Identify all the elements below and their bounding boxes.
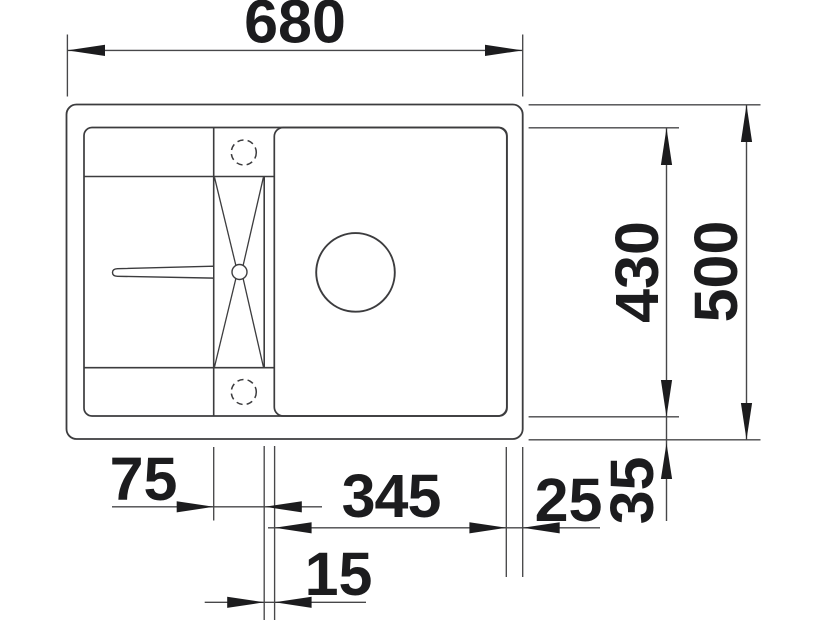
svg-text:35: 35 [598, 457, 666, 525]
svg-text:25: 25 [535, 466, 603, 534]
svg-text:500: 500 [682, 221, 750, 323]
svg-text:680: 680 [244, 0, 346, 56]
svg-text:15: 15 [305, 540, 373, 608]
svg-text:345: 345 [342, 462, 441, 530]
svg-text:430: 430 [603, 221, 671, 323]
svg-text:75: 75 [110, 445, 178, 513]
